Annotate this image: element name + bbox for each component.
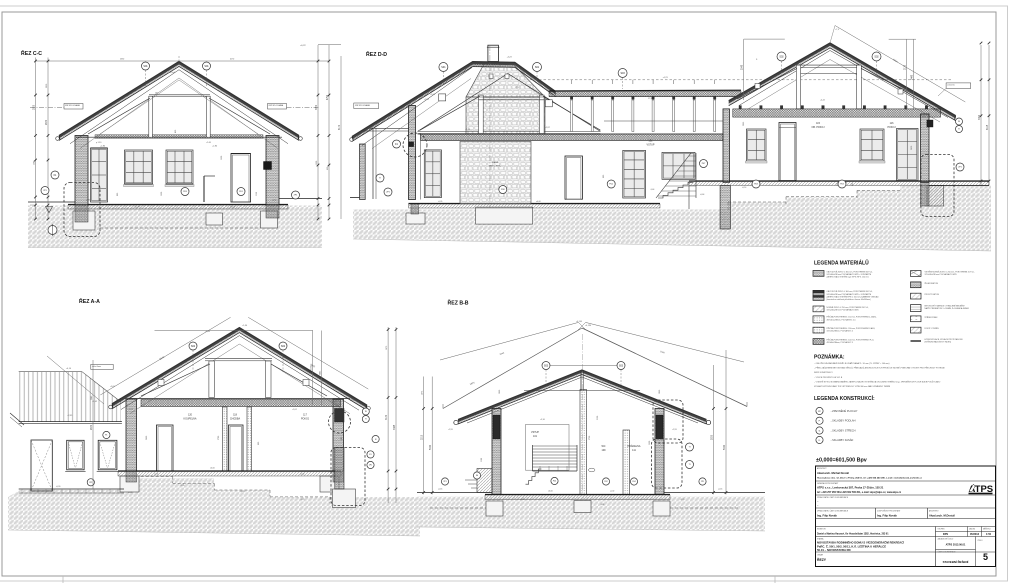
svg-text:-0,02: -0,02 xyxy=(610,491,614,493)
svg-text:-1,25: -1,25 xyxy=(680,499,684,501)
svg-text:117: 117 xyxy=(303,414,307,417)
svg-text:2P1: 2P1 xyxy=(443,481,446,483)
svg-text:120: 120 xyxy=(188,414,193,417)
svg-text:5040: 5040 xyxy=(500,352,506,356)
svg-text:1675: 1675 xyxy=(422,391,424,395)
svg-text:S01: S01 xyxy=(143,65,148,68)
svg-text:-0,05: -0,05 xyxy=(438,201,442,203)
svg-text:-1,75: -1,75 xyxy=(300,499,304,501)
svg-text:-0,45: -0,45 xyxy=(86,200,90,202)
svg-text:S01: S01 xyxy=(535,66,540,69)
svg-text:F4: F4 xyxy=(476,475,478,477)
svg-text:OBVODOVÉ ZDIVO tl. 300 mm, POR: OBVODOVÉ ZDIVO tl. 300 mm, POROTHERM 30 … xyxy=(827,270,874,273)
svg-text:-0,45: -0,45 xyxy=(438,489,442,491)
svg-text:6195: 6195 xyxy=(987,124,989,130)
svg-text:BETONOVÉ TVÁRNICE "ZTRACENÉ BE: BETONOVÉ TVÁRNICE "ZTRACENÉ BEDNĚNÍ" xyxy=(925,305,966,308)
svg-text:3050: 3050 xyxy=(34,104,36,110)
svg-text:+4,42: +4,42 xyxy=(820,100,825,102)
svg-text:ZODPOVĚDNÝ PROJEKTANT: ZODPOVĚDNÝ PROJEKTANT xyxy=(877,510,900,513)
svg-text:DPS: DPS xyxy=(943,533,948,536)
svg-text:IZOLANT EXTRUDOVANÝ POLYSTYREN: IZOLANT EXTRUDOVANÝ POLYSTYREN DO VÝŠE 3… xyxy=(814,385,891,388)
svg-text:p.1.30: p.1.30 xyxy=(96,142,101,144)
svg-text:115: 115 xyxy=(816,122,820,125)
svg-text:450: 450 xyxy=(175,130,177,133)
svg-text:+2,62: +2,62 xyxy=(128,409,133,411)
svg-text:Ing. Filip Novák: Ing. Filip Novák xyxy=(877,514,897,518)
svg-text:6170: 6170 xyxy=(339,124,341,130)
svg-text:497x115x238mm, P15 NA MVC 2,5: 497x115x238mm, P15 NA MVC 2,5 xyxy=(827,318,856,321)
svg-text:497x80x238mm, P10 NA MVC 5: 497x80x238mm, P10 NA MVC 5 xyxy=(827,341,854,344)
svg-text:ATPS 2013.06.01: ATPS 2013.06.01 xyxy=(946,544,966,547)
svg-text:±0,00: ±0,00 xyxy=(548,491,553,493)
svg-text:118: 118 xyxy=(233,414,237,417)
svg-text:1500: 1500 xyxy=(221,156,223,160)
svg-text:ŘEZ B-B: ŘEZ B-B xyxy=(448,299,469,307)
svg-text:3050: 3050 xyxy=(316,104,318,110)
svg-text:5845: 5845 xyxy=(160,356,166,361)
svg-text:±0,00: ±0,00 xyxy=(210,468,215,470)
svg-text:NOVOSTAVBA RODINNÉHO DOMU S VÍ: NOVOSTAVBA RODINNÉHO DOMU S VÍCEGENERAČN… xyxy=(817,540,904,545)
svg-text:-0,15: -0,15 xyxy=(272,200,276,202)
svg-text:1860: 1860 xyxy=(659,390,661,394)
svg-text:-1,45: -1,45 xyxy=(240,491,244,493)
svg-text:101: 101 xyxy=(533,435,538,438)
svg-text:2100: 2100 xyxy=(597,416,599,420)
svg-text:247x300x238 mm P10 NA MALTU M2: 247x300x238 mm P10 NA MALTU M25 + KONTAK… xyxy=(827,273,872,276)
svg-text:1150: 1150 xyxy=(256,192,258,196)
svg-text:3050: 3050 xyxy=(46,84,48,88)
svg-text:+2,95: +2,95 xyxy=(448,429,453,431)
svg-text:KOUPELNA: KOUPELNA xyxy=(183,418,196,421)
svg-text:– V MÍSTĚ STYKU KOMBINOVANÉHO: – V MÍSTĚ STYKU KOMBINOVANÉHO ZATEPLOVAC… xyxy=(814,380,941,383)
svg-text:PROSTÝ BETON: PROSTÝ BETON xyxy=(925,293,940,296)
svg-text:ZPRACOVATEL ČÁSTI DOKUMENTACE: ZPRACOVATEL ČÁSTI DOKUMENTACE xyxy=(817,510,849,513)
svg-text:tel: +420 257 950 531/+420 602: tel: +420 257 950 531/+420 602 500 811, … xyxy=(817,491,902,494)
svg-text:3130: 3130 xyxy=(386,414,388,420)
svg-text:Máxt: Máxt xyxy=(893,58,899,63)
svg-text:+4,23: +4,23 xyxy=(663,77,669,79)
svg-text:...SKLADBY PODLAH: ...SKLADBY PODLAH xyxy=(830,419,856,423)
svg-text:HALA: HALA xyxy=(492,161,498,164)
svg-text:116: 116 xyxy=(890,122,894,125)
svg-text:S02: S02 xyxy=(281,345,286,348)
svg-text:– PŘED ZAČÁTKEM BETONOVÁNÍ VĚN: – PŘED ZAČÁTKEM BETONOVÁNÍ VĚNCŮ, PŘEKLA… xyxy=(814,367,945,370)
svg-text:-1,25: -1,25 xyxy=(180,485,184,487)
svg-text:+2,80: +2,80 xyxy=(100,146,106,148)
svg-text:1960: 1960 xyxy=(499,390,501,394)
svg-text:-0,02: -0,02 xyxy=(300,474,304,476)
svg-text:ÚNP SPLOCHAMA: ÚNP SPLOCHAMA xyxy=(65,104,80,107)
svg-text:3445: 3445 xyxy=(394,424,396,430)
svg-text:PŘÍČKA POROTHERM tl. 200 mm, P: PŘÍČKA POROTHERM tl. 200 mm, POROTHERM 1… xyxy=(827,327,876,330)
svg-text:...SKLADBY STŘECH: ...SKLADBY STŘECH xyxy=(830,428,856,433)
svg-text:(konstrukce natáčená přímětkou: (konstrukce natáčená přímětkou z tloume … xyxy=(827,298,871,301)
svg-text:1675: 1675 xyxy=(386,346,388,350)
svg-text:STUPEŇ: STUPEŇ xyxy=(938,527,946,530)
svg-text:2630: 2630 xyxy=(911,146,913,150)
svg-text:ČÁST DOKUMENTACE: ČÁST DOKUMENTACE xyxy=(938,551,957,554)
svg-text:±0,00: ±0,00 xyxy=(230,207,236,209)
svg-text:S02: S02 xyxy=(874,55,879,58)
svg-text:S02: S02 xyxy=(191,345,196,348)
svg-text:+1,52: +1,52 xyxy=(424,99,429,101)
svg-text:Daniel a Martina Hanzovi, Ke H: Daniel a Martina Hanzovi, Ke Hvozdečkám … xyxy=(817,533,889,536)
svg-text:MĚŘÍTKO: MĚŘÍTKO xyxy=(983,527,991,530)
svg-text:50.01 – NOVOSTAVBA RD: 50.01 – NOVOSTAVBA RD xyxy=(817,548,851,552)
svg-text:2700: 2700 xyxy=(589,436,591,440)
svg-text:P04: P04 xyxy=(632,481,635,483)
svg-text:960: 960 xyxy=(852,183,854,186)
svg-text:+7,9: +7,9 xyxy=(835,29,840,31)
svg-text:ŘEZY: ŘEZY xyxy=(817,557,827,562)
svg-text:W: W xyxy=(958,121,960,123)
svg-text:POZNÁMKA:: POZNÁMKA: xyxy=(814,354,845,361)
svg-text:±0,000=601,500 Bpv: ±0,000=601,500 Bpv xyxy=(816,458,867,464)
svg-text:1500: 1500 xyxy=(161,192,163,196)
svg-text:STAVEBNÍ ŘEŠENÍ: STAVEBNÍ ŘEŠENÍ xyxy=(943,559,969,564)
svg-text:-0,30: -0,30 xyxy=(56,486,60,488)
svg-text:OB. POKOJ: OB. POKOJ xyxy=(812,126,826,129)
svg-text:1500: 1500 xyxy=(316,161,318,165)
svg-text:LEGENDA MATERIÁLŮ: LEGENDA MATERIÁLŮ xyxy=(814,259,869,267)
svg-text:vrchní límec: vrchní límec xyxy=(92,365,101,368)
svg-text:Ing. Filip Novák: Ing. Filip Novák xyxy=(817,514,837,518)
svg-text:S01: S01 xyxy=(441,66,446,69)
svg-text:+2,80: +2,80 xyxy=(212,146,218,148)
svg-text:POKOJ: POKOJ xyxy=(301,418,310,421)
svg-text:W: W xyxy=(365,411,367,413)
svg-text:372x240x238 mm P10 NA MALTU M2: 372x240x238 mm P10 NA MALTU M25 xyxy=(925,273,957,276)
svg-text:+4,134: +4,134 xyxy=(585,325,592,327)
svg-text:+5,34: +5,34 xyxy=(205,331,210,333)
svg-text:2P1: 2P1 xyxy=(701,481,704,483)
svg-text:17,5°: 17,5° xyxy=(515,87,520,89)
svg-text:F1: F1 xyxy=(369,454,371,456)
svg-text:1675: 1675 xyxy=(470,382,476,386)
svg-text:5: 5 xyxy=(983,552,988,562)
svg-text:NAPŘ. PRESBETON V+250MM, Š+300: NAPŘ. PRESBETON V+250MM, Š+300MM A 400MM xyxy=(925,307,970,310)
svg-text:ZPRACOVATEL ČÁSTI DOKUMENTACE: ZPRACOVATEL ČÁSTI DOKUMENTACE xyxy=(817,496,849,499)
svg-text:800: 800 xyxy=(117,193,119,196)
svg-text:–: – xyxy=(817,505,819,508)
svg-text:4750: 4750 xyxy=(327,94,329,100)
svg-text:P02: P02 xyxy=(604,481,607,483)
svg-text:5040: 5040 xyxy=(724,444,726,450)
svg-text:05/2013: 05/2013 xyxy=(970,533,980,536)
svg-text:2065: 2065 xyxy=(743,122,745,126)
svg-text:900: 900 xyxy=(258,442,260,445)
svg-text:372x240x238 mm P10 NA MALTU M2: 372x240x238 mm P10 NA MALTU M25 xyxy=(827,308,859,311)
svg-text:S03: S03 xyxy=(544,364,549,367)
svg-text:3130: 3130 xyxy=(905,64,907,70)
svg-text:-0,45: -0,45 xyxy=(718,489,722,491)
svg-text:S02: S02 xyxy=(779,55,784,58)
svg-text:S03: S03 xyxy=(619,364,624,367)
svg-text:ZP.: ZP. xyxy=(818,411,822,413)
svg-text:247x300x238 mm P10 NA MALTU M2: 247x300x238 mm P10 NA MALTU M25 + KONTAK… xyxy=(827,293,872,296)
svg-text:WC: WC xyxy=(602,445,606,448)
svg-text:ARCHITEKT: ARCHITEKT xyxy=(929,510,939,513)
svg-text:5040: 5040 xyxy=(430,444,432,450)
svg-text:+3,10: +3,10 xyxy=(540,419,545,421)
svg-text:Akad.arch. M.Dostál: Akad.arch. M.Dostál xyxy=(929,514,955,518)
svg-text:800: 800 xyxy=(341,437,343,440)
svg-text:3445: 3445 xyxy=(320,371,322,375)
svg-text:2830: 2830 xyxy=(712,434,714,440)
svg-text:-0,45: -0,45 xyxy=(128,492,132,494)
svg-text:+2,95: +2,95 xyxy=(67,415,73,417)
svg-text:5040: 5040 xyxy=(660,351,666,355)
svg-text:-0,14: -0,14 xyxy=(742,187,746,189)
svg-text:+3,05: +3,05 xyxy=(110,386,115,388)
svg-text:+5,34: +5,34 xyxy=(242,325,248,327)
svg-text:372x19x238mm, P10 NA MVC 5: 372x19x238mm, P10 NA MVC 5 xyxy=(827,330,854,333)
svg-text:CHODBA: CHODBA xyxy=(230,418,241,421)
svg-text:+2,62: +2,62 xyxy=(292,409,297,411)
svg-text:1:50: 1:50 xyxy=(986,533,992,536)
svg-text:±0,00: ±0,00 xyxy=(536,201,541,203)
svg-text:F1: F1 xyxy=(105,435,107,437)
svg-text:1380: 1380 xyxy=(34,161,36,165)
svg-text:1,9m²: 1,9m² xyxy=(170,71,175,74)
svg-text:ÚNP SPLOCHAMA: ÚNP SPLOCHAMA xyxy=(355,104,370,107)
svg-text:PŘÍČKA POROTHERM tl. 150 mm, P: PŘÍČKA POROTHERM tl. 150 mm, POROTHERM 1… xyxy=(827,316,878,319)
svg-text:ARCHITEKT: ARCHITEKT xyxy=(817,467,827,470)
svg-text:+4,23: +4,23 xyxy=(507,57,513,59)
svg-text:900: 900 xyxy=(603,175,605,178)
svg-text:17,5°: 17,5° xyxy=(648,98,653,100)
svg-text:P04: P04 xyxy=(553,481,556,483)
svg-text:-0,02: -0,02 xyxy=(154,474,158,476)
svg-text:NOSNÉ ZDIVO tl. 250 mm, POROTH: NOSNÉ ZDIVO tl. 250 mm, POROTHERM 24 P+D… xyxy=(827,306,870,309)
svg-text:VSTUP: VSTUP xyxy=(531,431,539,434)
svg-text:+3,05: +3,05 xyxy=(350,400,355,402)
svg-text:ZATEPLOVACÍ SYSTÉM EPS tl. 100: ZATEPLOVACÍ SYSTÉM EPS tl. 100 mm+KAMENN… xyxy=(827,295,880,298)
svg-text:ROSTLÝ TERÉN: ROSTLÝ TERÉN xyxy=(925,327,940,330)
svg-text:+2.46: +2.46 xyxy=(206,142,211,144)
svg-text:Husovykovo nám. 12, Zlevé u Pr: Husovykovo nám. 12, Zlevé u Prahy, 254 0… xyxy=(817,477,923,480)
svg-text:Akad.arch. Michal Dostál: Akad.arch. Michal Dostál xyxy=(817,471,849,475)
svg-text:ŽELEZOBETON: ŽELEZOBETON xyxy=(925,282,939,285)
svg-text:–: – xyxy=(817,501,819,504)
svg-text:INVESTOR: INVESTOR xyxy=(817,529,826,531)
svg-text:1100: 1100 xyxy=(481,458,483,462)
svg-text:S: S xyxy=(756,59,758,61)
svg-text:S01: S01 xyxy=(204,65,209,68)
svg-text:1500: 1500 xyxy=(649,441,651,445)
svg-text:(STŘEDNÍ RADONOVÝ INDEX): (STŘEDNÍ RADONOVÝ INDEX) xyxy=(925,341,952,344)
svg-text:VSTUP: VSTUP xyxy=(647,144,655,147)
svg-text:2045: 2045 xyxy=(91,396,93,400)
svg-text:2P1: 2P1 xyxy=(369,465,372,467)
svg-text:OBÝV. POK.: OBÝV. POK. xyxy=(489,165,502,168)
svg-text:– OBLOŽKOVÁ ZÁRUBEŇ DVEŘÍ JE U: – OBLOŽKOVÁ ZÁRUBEŇ DVEŘÍ JE UVAŽOVÁNA T… xyxy=(814,362,890,365)
svg-text:150: 150 xyxy=(837,183,839,186)
svg-text:2660: 2660 xyxy=(146,436,148,440)
svg-text:– VÝKCE PROVÉST DLE VIZ. B: – VÝKCE PROVÉST DLE VIZ. B xyxy=(814,376,843,379)
svg-text:101: 101 xyxy=(649,140,654,143)
svg-text:OBSAH: OBSAH xyxy=(817,554,824,557)
svg-text:+2,95: +2,95 xyxy=(672,429,677,431)
svg-text:+2,02: +2,02 xyxy=(430,94,435,96)
svg-text:VNITŘNÍ NOSNÉ ZDIVO tl. 250 mm: VNITŘNÍ NOSNÉ ZDIVO tl. 250 mm, POROTHER… xyxy=(925,271,975,274)
svg-text:PŘÍČKA POROTHERM tl. 100 mm, P: PŘÍČKA POROTHERM tl. 100 mm, POROTHERM 8… xyxy=(827,338,875,341)
svg-text:-1,44: -1,44 xyxy=(650,189,654,191)
svg-text:3210: 3210 xyxy=(422,434,424,440)
svg-text:-0,64: -0,64 xyxy=(700,194,704,196)
svg-text:PRÁDELNA: PRÁDELNA xyxy=(628,445,641,448)
svg-text:OBVODOVÉ ZDIVO tl. 300 mm, POR: OBVODOVÉ ZDIVO tl. 300 mm, POROTHERM 30 … xyxy=(827,290,874,293)
svg-text:SKRZ KONSTRUKCI: SKRZ KONSTRUKCI xyxy=(814,372,833,374)
svg-text:ČÍSLO: ČÍSLO xyxy=(978,539,984,542)
svg-text:2P1: 2P1 xyxy=(89,482,92,484)
svg-text:ŘEZ D-D: ŘEZ D-D xyxy=(366,50,387,58)
svg-text:2330: 2330 xyxy=(120,59,124,61)
svg-text:ZAKÁZKOVÉ ČÍSLO: ZAKÁZKOVÉ ČÍSLO xyxy=(938,538,954,541)
svg-text:LEGENDA KONSTRUKCÍ:: LEGENDA KONSTRUKCÍ: xyxy=(814,394,875,402)
svg-text:111: 111 xyxy=(632,449,636,452)
svg-text:3445: 3445 xyxy=(912,74,914,80)
svg-text:S03: S03 xyxy=(620,72,625,75)
svg-text:-1,44: -1,44 xyxy=(600,504,604,506)
svg-text:...SKLADBY FASÁD: ...SKLADBY FASÁD xyxy=(830,438,853,442)
svg-text:+2,46: +2,46 xyxy=(465,129,470,131)
svg-text:2780: 2780 xyxy=(218,436,220,440)
svg-text:630: 630 xyxy=(327,167,329,170)
svg-text:STAVBA: STAVBA xyxy=(817,538,824,541)
svg-text:GENERÁLNÍ PROJEKTANT: GENERÁLNÍ PROJEKTANT xyxy=(817,482,838,485)
svg-text:+6,22: +6,22 xyxy=(300,45,306,47)
svg-text:ŘEZ A-A: ŘEZ A-A xyxy=(79,297,100,305)
svg-text:vrchní lím.: vrchní lím. xyxy=(947,84,955,87)
svg-text:4170: 4170 xyxy=(230,59,234,61)
svg-text:DATUM: DATUM xyxy=(969,527,975,530)
svg-text:2045: 2045 xyxy=(742,64,744,70)
svg-text:ATPS s.r.o., Lenkovecká 387, P: ATPS s.r.o., Lenkovecká 387, Praha 17-Zl… xyxy=(817,486,884,490)
svg-text:+4,134: +4,134 xyxy=(576,321,582,323)
svg-text:-1,20: -1,20 xyxy=(520,499,524,501)
svg-text:+4,10: +4,10 xyxy=(66,368,72,370)
svg-text:2630: 2630 xyxy=(46,119,48,125)
svg-text:109: 109 xyxy=(602,449,607,452)
svg-text:ÚNP SPLOCHAMA: ÚNP SPLOCHAMA xyxy=(269,104,284,107)
svg-text:260: 260 xyxy=(155,93,158,95)
svg-text:2630: 2630 xyxy=(91,424,93,430)
svg-text:ŘEZ C-C: ŘEZ C-C xyxy=(21,49,42,57)
svg-text:...ZPEVNĚNÉ PLOCHY: ...ZPEVNĚNÉ PLOCHY xyxy=(830,408,858,413)
svg-text:+2,87: +2,87 xyxy=(545,127,550,129)
svg-text:POKOJ: POKOJ xyxy=(887,126,896,129)
svg-text:ZATEPLOVACÍ SYSTÉM např. EPS 7: ZATEPLOVACÍ SYSTÉM např. EPS 70F tl. 150… xyxy=(827,275,870,278)
svg-text:ŠTĚRKOPÍSEK: ŠTĚRKOPÍSEK xyxy=(925,316,939,319)
